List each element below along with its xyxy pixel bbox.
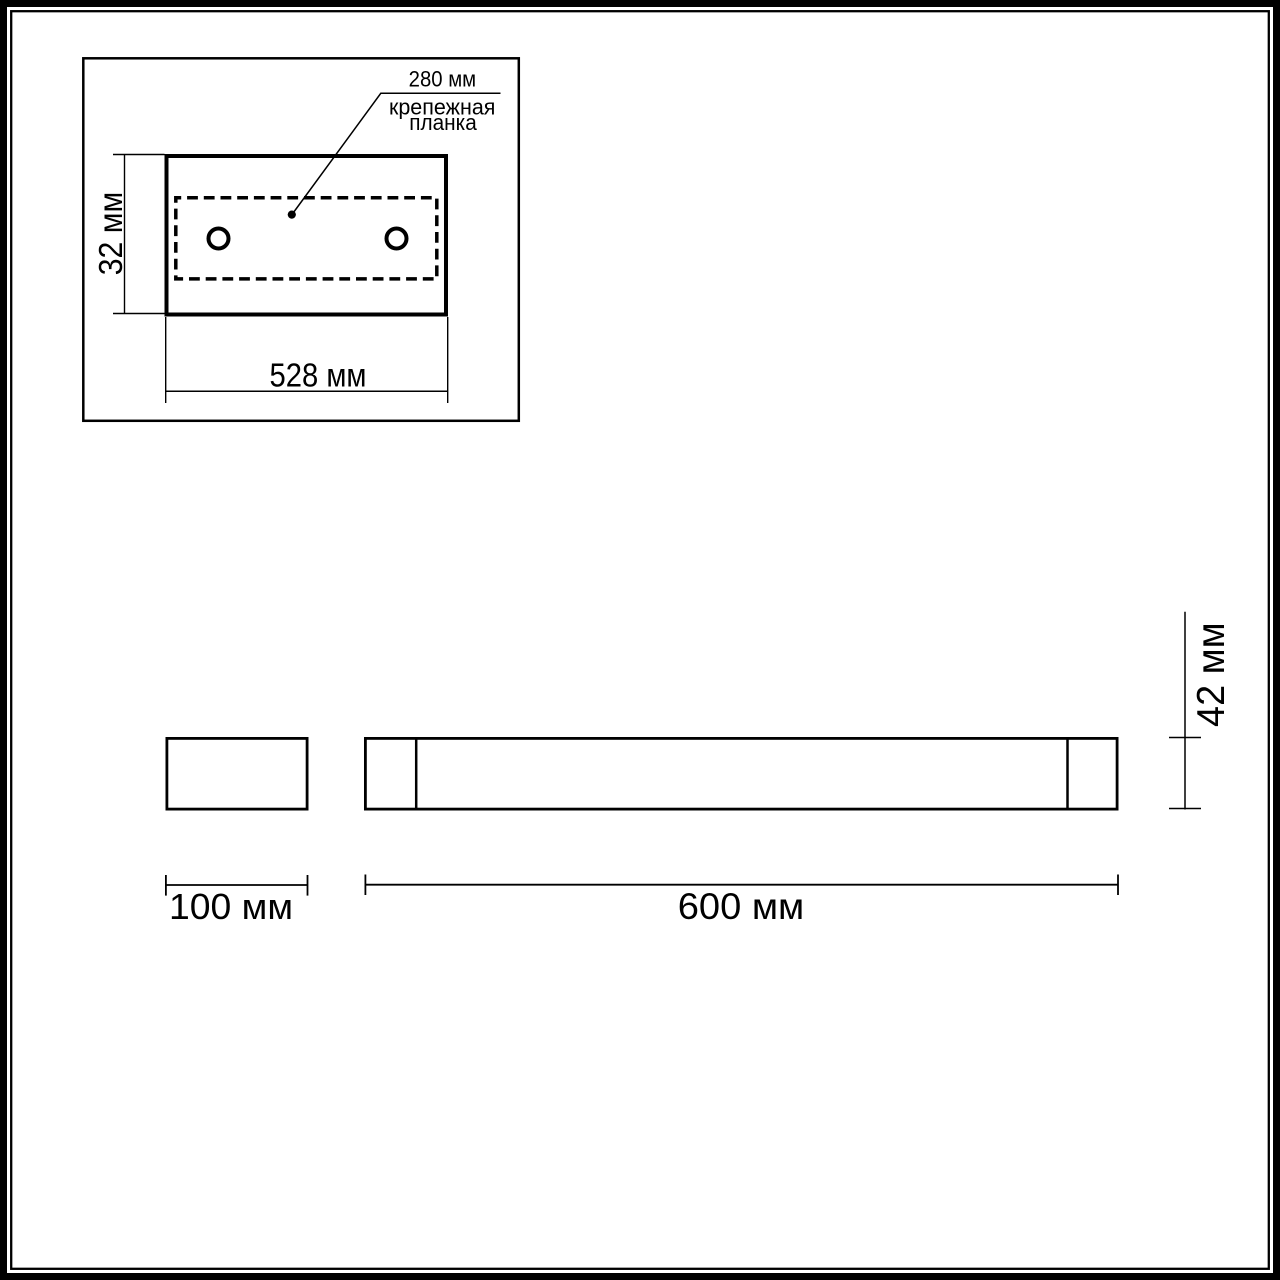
- svg-text:280 мм: 280 мм: [409, 67, 477, 92]
- svg-text:600 мм: 600 мм: [678, 885, 805, 927]
- svg-text:планка: планка: [409, 110, 477, 135]
- svg-text:528 мм: 528 мм: [270, 357, 367, 394]
- svg-text:100 мм: 100 мм: [169, 886, 293, 927]
- svg-text:42 мм: 42 мм: [1190, 622, 1233, 727]
- svg-text:32 мм: 32 мм: [92, 192, 129, 276]
